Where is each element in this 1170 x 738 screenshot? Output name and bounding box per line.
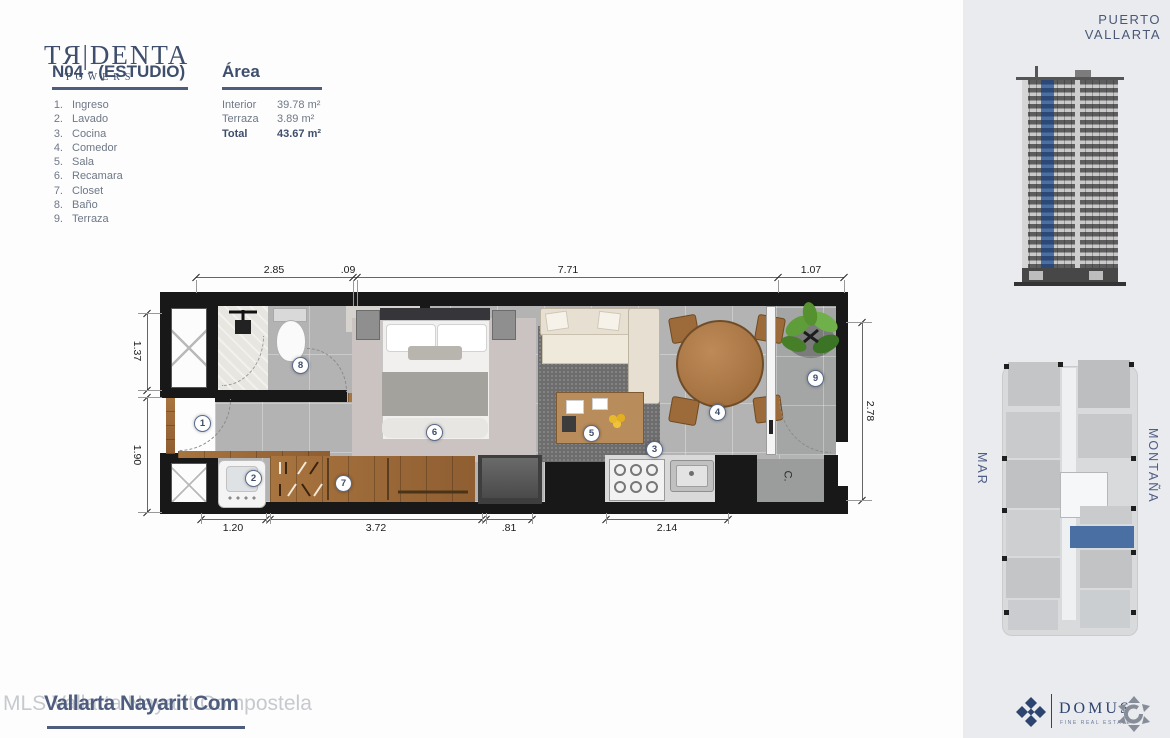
orientation-mar-label: MAR — [975, 452, 989, 486]
key-plan-column — [1131, 456, 1136, 461]
key-plan-column — [1131, 506, 1136, 511]
room-marker: 6 — [426, 424, 443, 441]
watermark-text-front: Vallarta Nayarit Com — [44, 692, 238, 716]
watermark-underline — [47, 726, 245, 729]
legend-item: 3.Cocina — [48, 127, 123, 141]
dimension-label: 1.90 — [131, 435, 143, 475]
accent-pillow — [408, 346, 462, 360]
sink-bowl — [676, 465, 708, 487]
extension-line — [606, 513, 607, 524]
legend-item: 1.Ingreso — [48, 98, 123, 112]
area-row: Interior39.78 m² — [222, 98, 321, 112]
legend-num: 2. — [48, 112, 63, 126]
legend-label: Terraza — [72, 212, 109, 226]
sidebar: PUERTO VALLARTA — [963, 0, 1170, 738]
condenser-label: C. — [782, 471, 794, 482]
key-plan-unit — [1008, 362, 1060, 406]
extension-line — [846, 500, 872, 501]
area-title: Área — [222, 62, 260, 82]
key-plan-unit — [1006, 510, 1060, 556]
structural-x-panel — [171, 308, 207, 388]
dimension-label: .81 — [489, 522, 529, 534]
key-plan-unit — [1006, 460, 1060, 508]
unit-title-rule — [52, 87, 188, 90]
legend-label: Recamara — [72, 169, 123, 183]
room-marker: 1 — [194, 415, 211, 432]
sofa-pillow — [545, 311, 569, 332]
dimension-label: 2.85 — [254, 264, 294, 276]
extension-line — [138, 512, 162, 513]
shower-head-icon — [225, 308, 261, 334]
key-plan — [996, 360, 1142, 640]
orientation-montana-label: MONTAÑA — [1146, 428, 1160, 504]
extension-line — [201, 513, 202, 524]
area-label: Interior — [222, 98, 277, 112]
tower-lobby-window — [1089, 271, 1103, 280]
area-value: 3.89 m² — [277, 112, 314, 126]
key-plan-unit — [1078, 360, 1130, 408]
key-plan-column — [1004, 364, 1009, 369]
dimension-label: 2.78 — [864, 391, 876, 431]
area-label: Terraza — [222, 112, 277, 126]
area-value: 39.78 m² — [277, 98, 320, 112]
legend-item: 9.Terraza — [48, 212, 123, 226]
tower-elevation — [1022, 80, 1118, 268]
legend-num: 9. — [48, 212, 63, 226]
extension-line — [266, 513, 267, 524]
area-row: Terraza3.89 m² — [222, 112, 321, 126]
unit-title: N04 - (ESTUDIO) — [52, 62, 185, 82]
legend-item: 7.Closet — [48, 184, 123, 198]
tower-rooftop-box — [1075, 70, 1091, 77]
toilet — [276, 320, 306, 362]
sofa-chaise — [628, 308, 660, 404]
key-plan-column — [1002, 508, 1007, 513]
dimension-label: 3.72 — [356, 522, 396, 534]
bed-headboard — [380, 308, 490, 320]
extension-line — [532, 513, 533, 524]
table-tray — [566, 400, 584, 414]
location-label: PUERTO VALLARTA — [1041, 12, 1161, 42]
room-marker: 5 — [583, 425, 600, 442]
dimension-label: 1.07 — [791, 264, 831, 276]
room-marker: 9 — [807, 370, 824, 387]
room-marker: 2 — [245, 470, 262, 487]
extension-line — [728, 513, 729, 524]
key-plan-unit — [1008, 600, 1058, 630]
area-row-total: Total43.67 m² — [222, 127, 321, 141]
dimension-label: 7.71 — [548, 264, 588, 276]
key-plan-column — [1129, 362, 1134, 367]
dimension-line — [147, 397, 148, 512]
extension-line — [846, 322, 872, 323]
legend-num: 6. — [48, 169, 63, 183]
extension-line — [138, 397, 162, 398]
key-plan-column — [1131, 550, 1136, 555]
extension-line — [778, 280, 779, 293]
tower-lobby-window — [1029, 271, 1043, 280]
tv-unit-top — [482, 458, 538, 498]
table-tray — [592, 398, 608, 410]
extension-line — [486, 513, 487, 524]
dining-table — [676, 320, 764, 408]
extension-line — [270, 513, 271, 524]
stove-burners — [609, 459, 663, 499]
key-plan-unit — [1078, 414, 1132, 458]
legend-num: 5. — [48, 155, 63, 169]
extension-line — [844, 280, 845, 293]
dimension-label: 2.14 — [647, 522, 687, 534]
wall — [715, 455, 757, 505]
tower-blue-stripe — [1041, 80, 1054, 272]
brochure-page: TЯ|DENTA TOWERS N04 - (ESTUDIO) Área 1.I… — [0, 0, 1170, 738]
legend-item: 2.Lavado — [48, 112, 123, 126]
legend-label: Comedor — [72, 141, 117, 155]
legend-item: 8.Baño — [48, 198, 123, 212]
key-plan-highlighted-unit — [1070, 526, 1134, 548]
dimension-line — [201, 519, 266, 520]
legend-num: 7. — [48, 184, 63, 198]
logo-divider — [1051, 694, 1052, 728]
area-table: Interior39.78 m² Terraza3.89 m² Total43.… — [222, 98, 321, 141]
room-marker: 8 — [292, 357, 309, 374]
key-plan-column — [1002, 456, 1007, 461]
key-plan-unit — [1006, 558, 1060, 598]
nightstand — [356, 310, 380, 340]
dimension-line — [147, 313, 148, 390]
dimension-line — [486, 519, 532, 520]
association-emblem-icon — [1113, 692, 1155, 736]
legend-item: 4.Comedor — [48, 141, 123, 155]
key-plan-column — [1002, 556, 1007, 561]
wall — [160, 292, 848, 306]
extension-line — [357, 280, 358, 306]
bed-blanket — [382, 372, 488, 416]
legend-label: Cocina — [72, 127, 106, 141]
extension-line — [353, 280, 354, 306]
entry-wood-strip — [166, 398, 175, 454]
area-title-rule — [222, 87, 322, 90]
key-plan-column — [1131, 610, 1136, 615]
key-plan-unit — [1080, 506, 1132, 524]
legend-item: 6.Recamara — [48, 169, 123, 183]
key-plan-unit — [1006, 412, 1060, 458]
key-plan-column — [1004, 610, 1009, 615]
room-marker: 3 — [646, 441, 663, 458]
legend-num: 4. — [48, 141, 63, 155]
dimension-label: 1.37 — [131, 331, 143, 371]
legend-label: Lavado — [72, 112, 108, 126]
dimension-label: .09 — [333, 264, 363, 276]
dimension-line — [270, 519, 482, 520]
washer-controls — [226, 496, 256, 500]
dimension-label: 1.20 — [213, 522, 253, 534]
extension-line — [196, 280, 197, 293]
legend-label: Baño — [72, 198, 98, 212]
tower-edge-column — [1022, 80, 1028, 268]
key-plan-unit — [1080, 590, 1130, 628]
room-marker: 7 — [335, 475, 352, 492]
dimension-line — [196, 277, 844, 278]
extension-line — [482, 513, 483, 524]
domus-pinwheel-icon — [1015, 696, 1047, 728]
sink-drain — [689, 471, 694, 476]
dimension-line — [606, 519, 728, 520]
legend-num: 8. — [48, 198, 63, 212]
legend-label: Sala — [72, 155, 94, 169]
room-legend: 1.Ingreso 2.Lavado 3.Cocina 4.Comedor 5.… — [48, 98, 123, 227]
extension-line — [138, 390, 162, 391]
tower-mullion — [1075, 80, 1080, 268]
key-plan-unit — [1080, 550, 1132, 588]
table-book — [562, 416, 576, 432]
closet-hangers — [270, 456, 475, 502]
tower-ground-line — [1014, 282, 1126, 286]
fruit-bowl — [608, 414, 630, 428]
sofa-pillow — [597, 311, 621, 332]
dimension-line — [862, 322, 863, 500]
room-marker: 4 — [709, 404, 726, 421]
area-value: 43.67 m² — [277, 127, 321, 141]
wall — [545, 455, 605, 505]
legend-num: 3. — [48, 127, 63, 141]
legend-num: 1. — [48, 98, 63, 112]
area-label: Total — [222, 127, 277, 141]
plant — [780, 300, 842, 374]
sliding-door-handle — [769, 420, 773, 434]
legend-item: 5.Sala — [48, 155, 123, 169]
nightstand — [492, 310, 516, 340]
legend-label: Ingreso — [72, 98, 109, 112]
legend-label: Closet — [72, 184, 103, 198]
structural-x-panel — [171, 463, 207, 507]
extension-line — [138, 313, 162, 314]
key-plan-column — [1058, 362, 1063, 367]
